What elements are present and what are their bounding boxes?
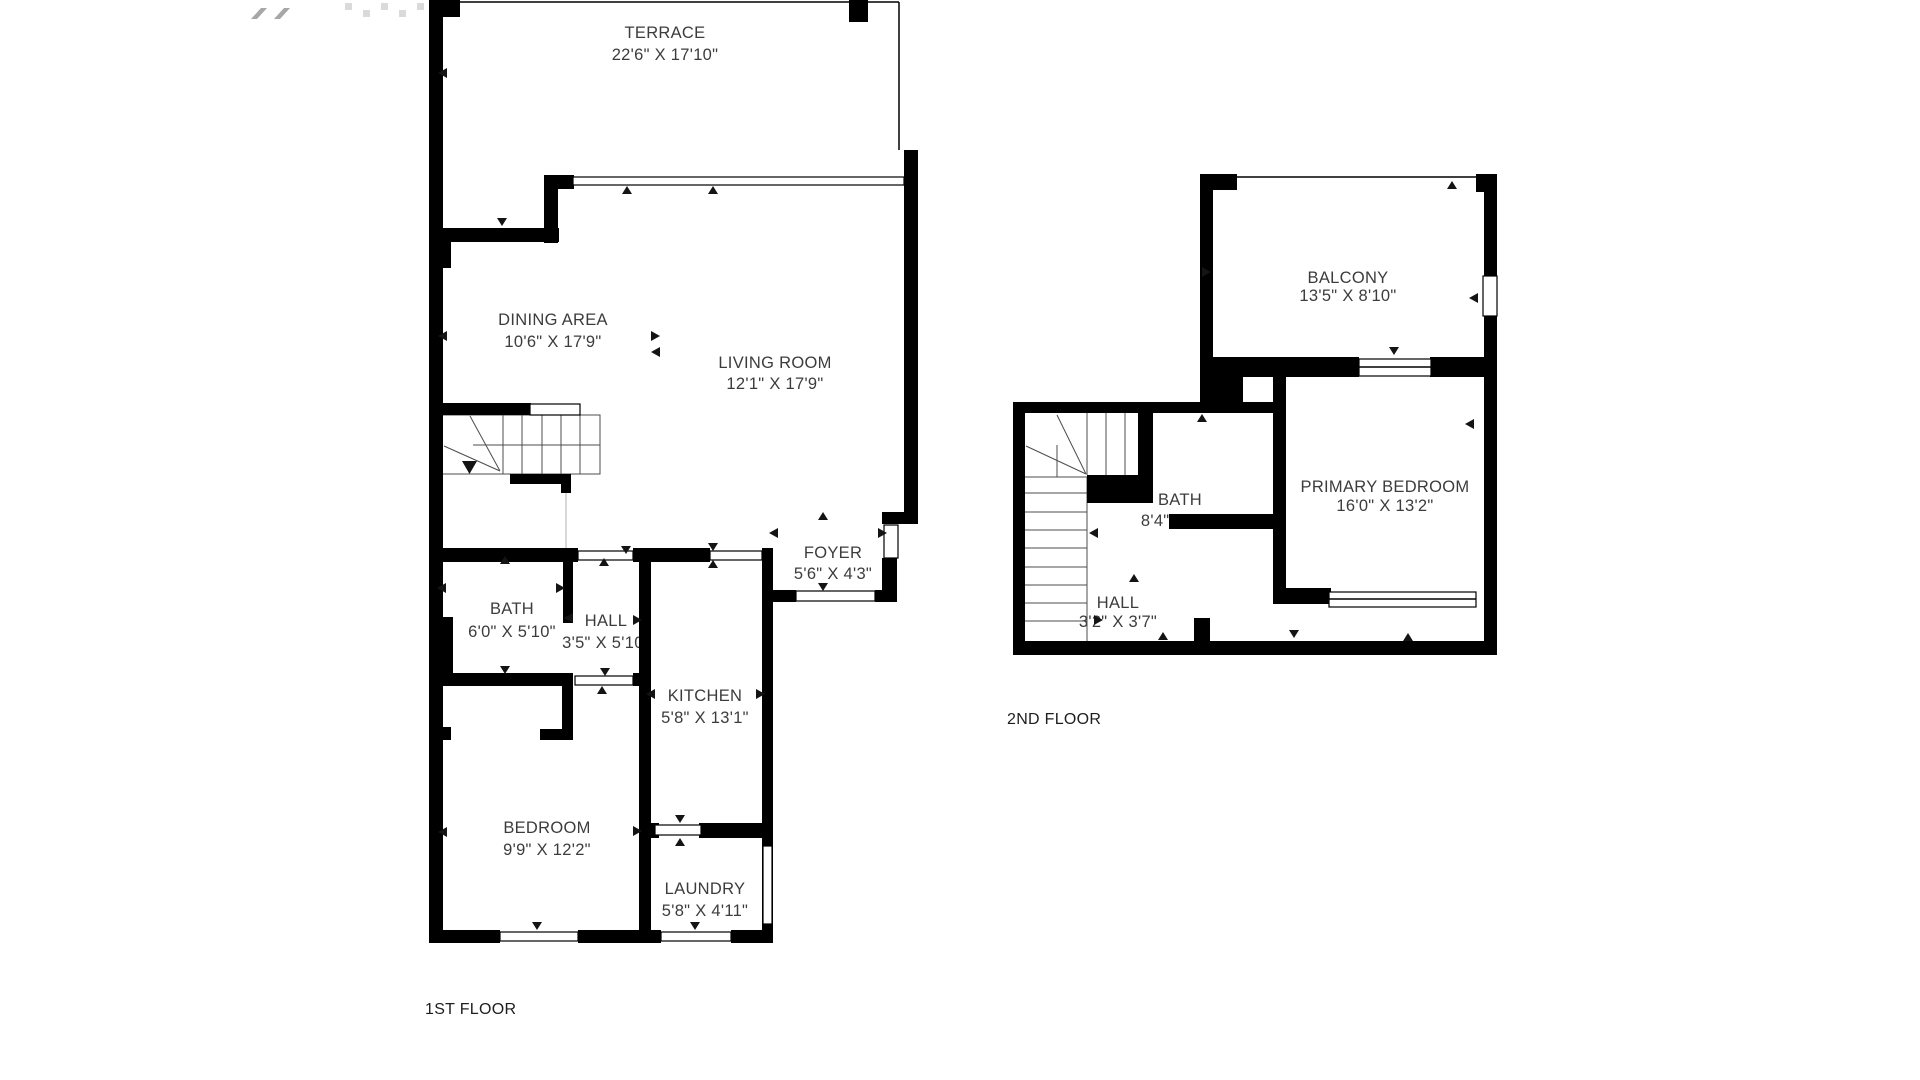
foyer-window <box>796 591 875 601</box>
stair-winders <box>1026 415 1086 474</box>
kitchen-dims: 5'8" X 13'1" <box>661 709 749 727</box>
terrace-dims: 22'6" X 17'10" <box>612 46 719 64</box>
terrace-window <box>573 177 904 185</box>
bedroom-dims: 9'9" X 12'2" <box>503 841 591 859</box>
opening-markers-first-floor <box>437 68 887 930</box>
balcony-dims: 13'5" X 8'10" <box>1299 287 1396 305</box>
bedroom-window <box>500 932 578 941</box>
stair-landing <box>530 404 580 415</box>
floor-plan-page: TERRACE 22'6" X 17'10" DINING AREA 10'6"… <box>0 0 1920 1080</box>
laundry-dims: 5'8" X 4'11" <box>662 902 748 920</box>
edge-artifacts <box>251 3 424 19</box>
bath1-label: BATH <box>490 600 534 618</box>
hall2-label: HALL <box>1097 594 1139 612</box>
first-floor-caption: 1ST FLOOR <box>425 1001 516 1018</box>
first-floor: TERRACE 22'6" X 17'10" DINING AREA 10'6"… <box>429 0 918 943</box>
kitchen-door <box>710 551 762 560</box>
laundry-door <box>655 825 701 835</box>
bath1-dims: 6'0" X 5'10" <box>468 623 556 641</box>
terrace-label: TERRACE <box>625 24 706 42</box>
balcony-label: BALCONY <box>1308 269 1389 287</box>
laundry-side-window <box>763 846 772 924</box>
second-floor: BALCONY 13'5" X 8'10" BATH 8'4" X 7'5" P… <box>1013 174 1497 655</box>
second-floor-caption: 2ND FLOOR <box>1007 711 1101 728</box>
dining-dims: 10'6" X 17'9" <box>504 333 601 351</box>
balcony-side-window <box>1483 276 1497 316</box>
primary-bedroom-dims: 16'0" X 13'2" <box>1336 497 1433 515</box>
living-label: LIVING ROOM <box>718 354 831 372</box>
edge-artifact-mark <box>251 8 290 19</box>
floor-plan-drawing: TERRACE 22'6" X 17'10" DINING AREA 10'6"… <box>0 0 1920 1080</box>
stair-down-arrow <box>462 461 477 474</box>
entry-door <box>884 525 898 558</box>
hall-top-door <box>578 551 633 560</box>
hall1-label: HALL <box>585 612 627 630</box>
second-floor-walls <box>1013 174 1497 655</box>
edge-artifact-dots <box>345 3 424 17</box>
living-dims: 12'1" X 17'9" <box>726 375 823 393</box>
laundry-label: LAUNDRY <box>665 880 746 898</box>
bath2-label: BATH <box>1158 491 1202 509</box>
kitchen-label: KITCHEN <box>668 687 743 705</box>
dining-label: DINING AREA <box>498 311 608 329</box>
foyer-label: FOYER <box>804 544 862 562</box>
hall2-dims: 3'2" X 3'7" <box>1079 613 1157 631</box>
primary-bedroom-label: PRIMARY BEDROOM <box>1301 478 1470 496</box>
first-floor-walls <box>429 0 918 943</box>
laundry-window <box>661 932 731 941</box>
first-floor-labels: TERRACE 22'6" X 17'10" DINING AREA 10'6"… <box>468 24 872 920</box>
hall1-dims: 3'5" X 5'10" <box>562 634 650 652</box>
foyer-dims: 5'6" X 4'3" <box>794 565 872 583</box>
bedroom-label: BEDROOM <box>503 819 590 837</box>
hall-bottom-door <box>575 676 633 685</box>
